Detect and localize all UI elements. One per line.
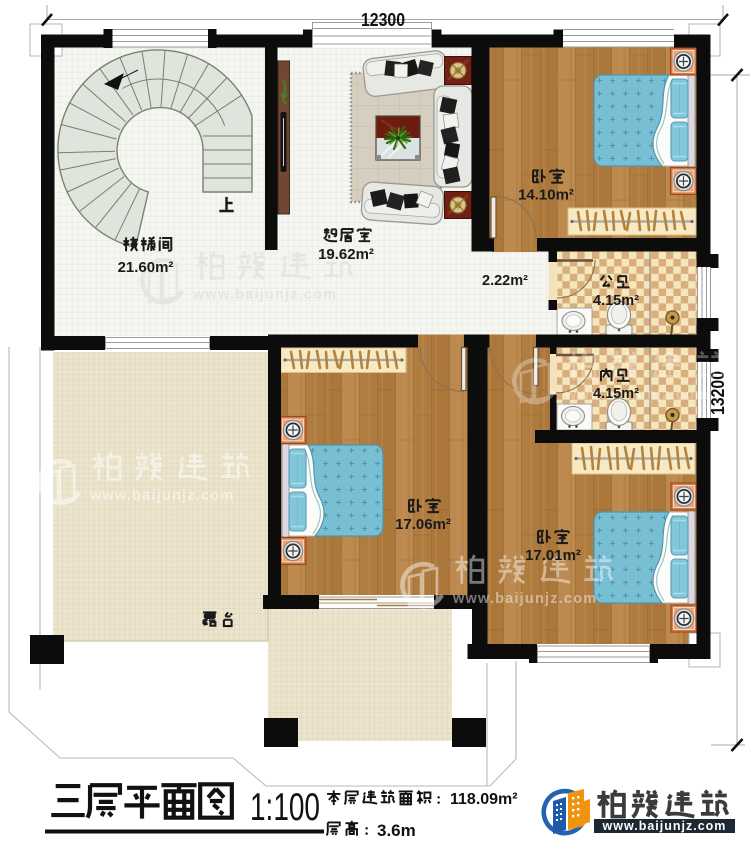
svg-text:2.22m²: 2.22m² (482, 273, 528, 289)
svg-text:3.6m: 3.6m (377, 821, 416, 840)
svg-text:www.baijunjz.com: www.baijunjz.com (602, 819, 727, 833)
svg-text:21.60m²: 21.60m² (118, 259, 174, 276)
svg-text:17.06m²: 17.06m² (395, 516, 451, 533)
svg-text:4.15m²: 4.15m² (593, 386, 639, 402)
svg-text:14.10m²: 14.10m² (518, 187, 574, 204)
svg-text:19.62m²: 19.62m² (318, 246, 374, 263)
svg-text:12300: 12300 (361, 10, 405, 30)
svg-text:17.01m²: 17.01m² (525, 547, 581, 564)
svg-text:4.15m²: 4.15m² (593, 293, 639, 309)
svg-text:13200: 13200 (708, 371, 728, 415)
svg-text:118.09m²: 118.09m² (450, 791, 518, 808)
svg-text:1:100: 1:100 (250, 786, 320, 829)
